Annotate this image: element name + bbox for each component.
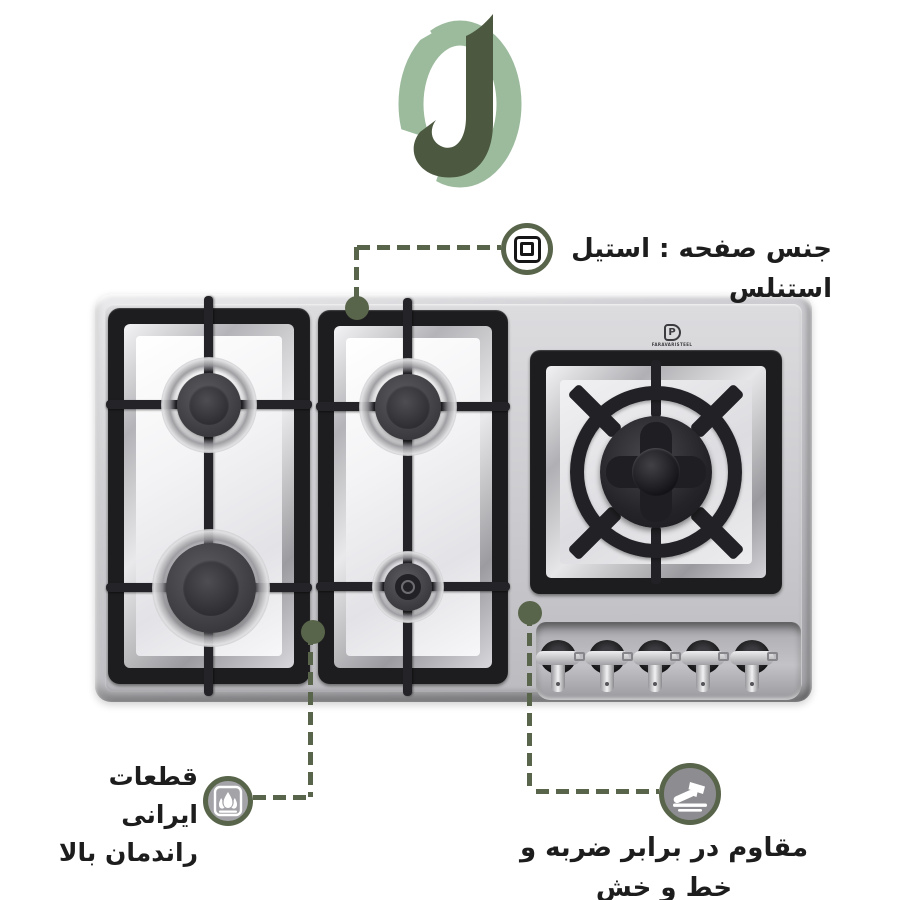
infographic-canvas: P FARAVARISTEEL xyxy=(0,0,900,900)
wok-burner-frame xyxy=(530,350,782,594)
burner-indicator-icon xyxy=(574,652,585,661)
burner-knob[interactable] xyxy=(585,638,629,698)
grate-module-left xyxy=(108,308,310,684)
stove-brand-mark: P xyxy=(664,324,681,341)
wok-burner-hub xyxy=(632,448,680,496)
grate-module-middle xyxy=(318,310,508,684)
durability-label: مقاوم در برابر ضربه و خط و خش xyxy=(494,828,834,868)
knob-screw xyxy=(556,682,560,686)
burner-knob[interactable] xyxy=(536,638,580,698)
stove-brand-logo: P FARAVARISTEEL xyxy=(642,320,702,354)
iranian-parts-line2: راندمان بالا xyxy=(48,834,198,872)
letter-j-brand-logo xyxy=(396,11,522,189)
burner-cap-inner xyxy=(386,385,430,429)
knob-screw xyxy=(750,682,754,686)
surface-material-label: جنس صفحه : استیل استنلس xyxy=(556,229,832,269)
burner-knob[interactable] xyxy=(681,638,725,698)
stove-brand-text: FARAVARISTEEL xyxy=(642,342,702,347)
hammer-icon xyxy=(659,763,721,825)
connector-line xyxy=(354,247,359,303)
connector-line xyxy=(536,789,659,794)
iranian-parts-label: قطعات ایرانی راندمان بالا xyxy=(48,758,198,872)
knob-screw xyxy=(653,682,657,686)
flame-icon xyxy=(203,776,253,826)
connector-line xyxy=(527,613,532,791)
burner-knob[interactable] xyxy=(730,638,774,698)
stainless-surface-icon xyxy=(501,223,553,275)
connector-line xyxy=(253,795,313,800)
gas-cooktop: P FARAVARISTEEL xyxy=(95,294,812,702)
connector-dot xyxy=(345,296,369,320)
knob-screw xyxy=(701,682,705,686)
burner-knob[interactable] xyxy=(633,638,677,698)
connector-dot xyxy=(301,620,325,644)
hammer-glyph xyxy=(669,773,711,815)
burner-indicator-icon xyxy=(718,652,729,661)
connector-line xyxy=(308,632,313,797)
burner-indicator-icon xyxy=(767,652,778,661)
iranian-parts-line1: قطعات ایرانی xyxy=(48,758,198,834)
flame-glyph xyxy=(213,785,243,817)
knob-screw xyxy=(605,682,609,686)
burner-indicator-icon xyxy=(622,652,633,661)
burner-cap-inner xyxy=(183,560,239,616)
burner-indicator-icon xyxy=(670,652,681,661)
burner-cap-inner xyxy=(189,385,229,425)
connector-line xyxy=(357,245,501,250)
nested-squares-glyph xyxy=(514,236,541,263)
burner-center-dot xyxy=(403,582,413,592)
control-panel-recess xyxy=(536,622,801,700)
